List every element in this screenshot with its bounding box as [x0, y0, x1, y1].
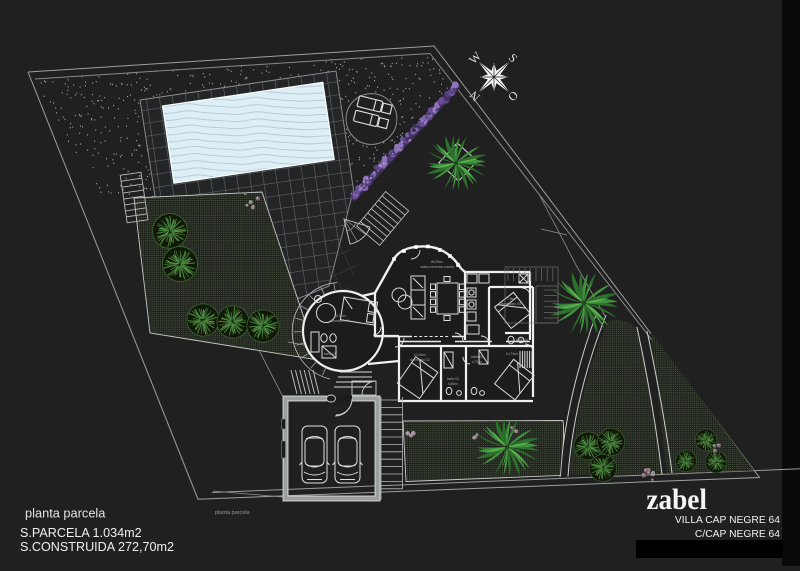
svg-text:46,00m²: 46,00m²: [431, 260, 444, 264]
svg-text:10,16m²: 10,16m²: [414, 353, 427, 357]
svg-text:C/CAP NEGRE 64: C/CAP NEGRE 64: [695, 529, 780, 540]
svg-text:S.PARCELA 1.034m2: S.PARCELA 1.034m2: [20, 526, 142, 540]
svg-text:4,80m²: 4,80m²: [448, 382, 459, 386]
svg-text:salón-comedor-cocina: salón-comedor-cocina: [420, 265, 453, 269]
svg-text:dormitorio 01: dormitorio 01: [330, 319, 350, 323]
svg-text:planta parcela: planta parcela: [215, 510, 250, 516]
svg-text:baño 03: baño 03: [471, 355, 483, 359]
svg-text:baño 04: baño 04: [516, 338, 528, 342]
svg-text:zabel: zabel: [646, 483, 707, 517]
svg-text:4,70m²: 4,70m²: [472, 360, 483, 364]
svg-text:S.CONSTRUIDA 272,70m2: S.CONSTRUIDA 272,70m2: [20, 540, 174, 554]
svg-text:7,9m²: 7,9m²: [507, 297, 517, 301]
svg-text:16,31m²: 16,31m²: [334, 314, 347, 318]
svg-text:baño 01: baño 01: [324, 352, 336, 356]
svg-text:dormitorio 02: dormitorio 02: [410, 358, 430, 362]
svg-text:baño 02: baño 02: [447, 377, 459, 381]
svg-text:VILLA CAP NEGRE 64: VILLA CAP NEGRE 64: [675, 515, 780, 526]
svg-text:dormitorio 04: dormitorio 04: [501, 302, 521, 306]
svg-text:10,74m²: 10,74m²: [506, 352, 519, 356]
svg-text:planta parcela: planta parcela: [25, 506, 106, 521]
